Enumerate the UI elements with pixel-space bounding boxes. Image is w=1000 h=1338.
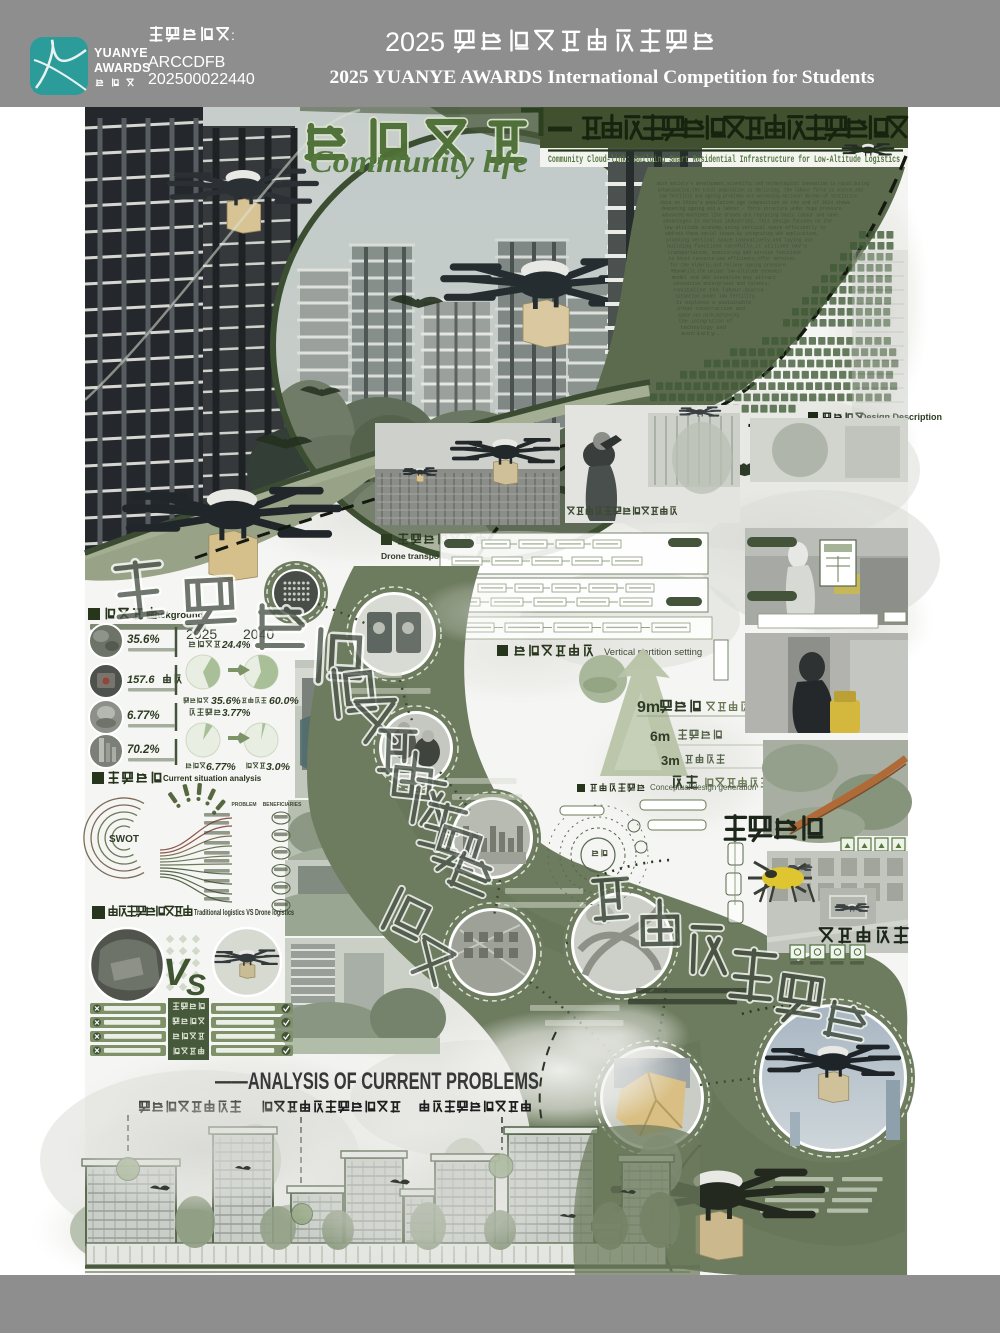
- svg-text:3m: 3m: [661, 753, 680, 768]
- svg-text:60.0%: 60.0%: [269, 695, 299, 707]
- svg-text:3.0%: 3.0%: [266, 761, 291, 773]
- svg-text:35.6%: 35.6%: [211, 695, 241, 707]
- svg-text:SWOT: SWOT: [109, 834, 139, 845]
- svg-text:Conceptual design generation: Conceptual design generation: [650, 783, 756, 792]
- svg-text::: :: [231, 27, 235, 43]
- svg-text:6m: 6m: [650, 728, 670, 744]
- svg-text:YUANYE: YUANYE: [94, 46, 148, 60]
- svg-text:2025: 2025: [385, 27, 445, 57]
- svg-text:202500022440: 202500022440: [148, 71, 255, 88]
- svg-text:70.2%: 70.2%: [127, 744, 160, 756]
- svg-text:Community life: Community life: [310, 143, 528, 179]
- svg-text:Vertical partition setting: Vertical partition setting: [604, 647, 702, 658]
- svg-text:BENEFICIARIES: BENEFICIARIES: [263, 802, 302, 808]
- svg-text:3.77%: 3.77%: [222, 708, 250, 719]
- svg-text:Traditional logistics VS Drone: Traditional logistics VS Drone logistics: [194, 907, 294, 917]
- svg-text:157.6: 157.6: [127, 674, 155, 686]
- svg-text:6.77%: 6.77%: [206, 761, 236, 773]
- svg-text:35.6%: 35.6%: [127, 634, 160, 646]
- svg-text:society.: society.: [681, 330, 721, 337]
- svg-text:AWARDS: AWARDS: [94, 61, 151, 75]
- svg-text:24.4%: 24.4%: [221, 640, 250, 651]
- svg-text:ARCCDFB: ARCCDFB: [148, 54, 225, 71]
- svg-text:9m: 9m: [637, 699, 660, 716]
- svg-text:2025 YUANYE AWARDS Internation: 2025 YUANYE AWARDS International Competi…: [330, 67, 875, 88]
- svg-text:6.77%: 6.77%: [127, 710, 160, 722]
- svg-text:PROBLEM: PROBLEM: [232, 802, 257, 808]
- svg-text:S: S: [186, 969, 206, 1002]
- svg-text:Current situation analysis: Current situation analysis: [163, 774, 262, 783]
- svg-text:Community Cloud-link: Building: Community Cloud-link: Building Smart Res…: [548, 154, 900, 166]
- svg-text:——ANALYSIS OF CURRENT PROBLEMS: ——ANALYSIS OF CURRENT PROBLEMS: [215, 1068, 539, 1095]
